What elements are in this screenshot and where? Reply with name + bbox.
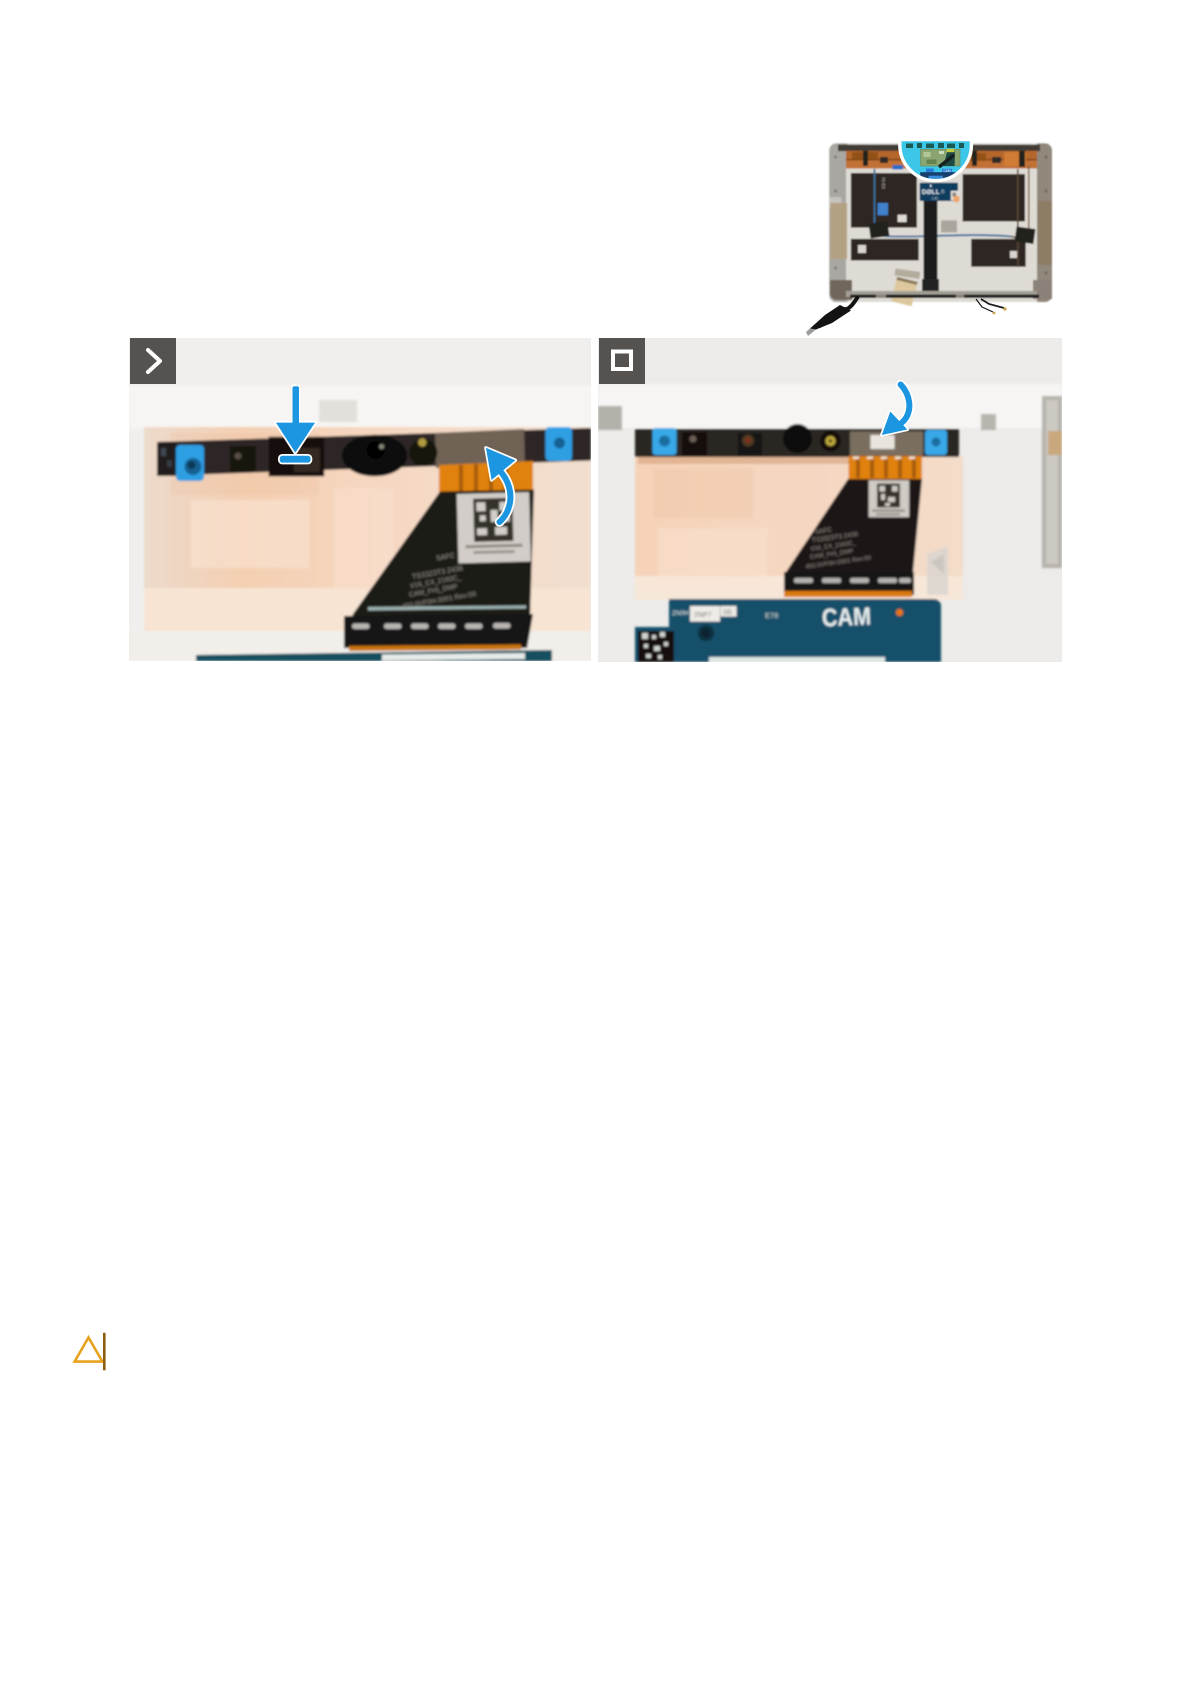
svg-text:76 E3: 76 E3: [881, 177, 886, 189]
svg-text:®: ®: [941, 189, 945, 196]
svg-text:2N0H: 2N0H: [672, 610, 689, 617]
svg-text:L3D: L3D: [932, 197, 939, 201]
svg-text:DØLL: DØLL: [922, 189, 940, 196]
svg-text:05: 05: [724, 608, 732, 617]
svg-text:2NP7: 2NP7: [694, 612, 712, 619]
svg-text:E78: E78: [765, 611, 778, 620]
svg-text:CAM: CAM: [822, 603, 872, 633]
